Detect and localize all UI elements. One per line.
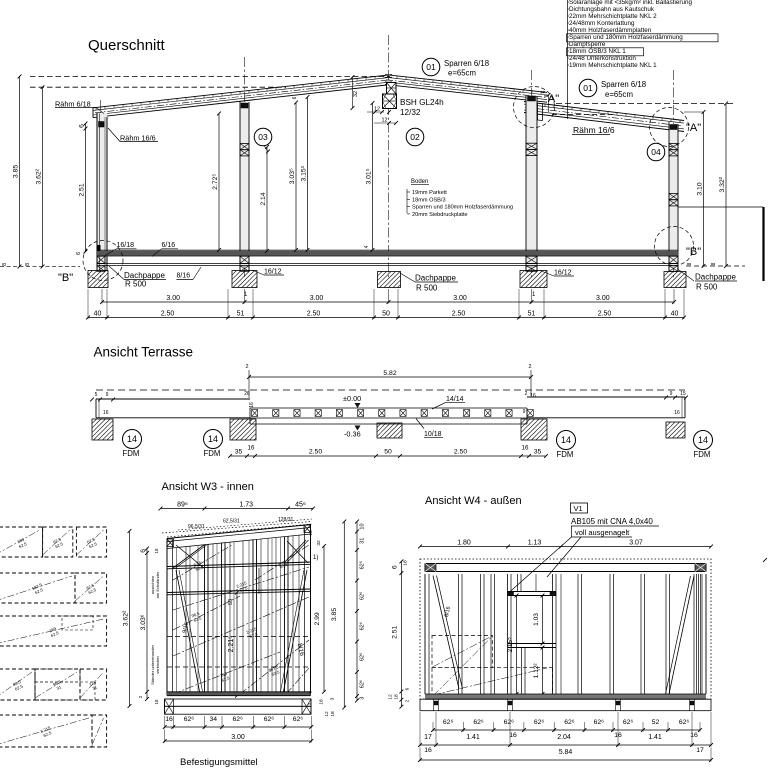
svg-text:"B": "B" (686, 246, 701, 258)
svg-text:2.04: 2.04 (557, 734, 571, 741)
svg-text:18: 18 (394, 694, 400, 700)
svg-text:2.50: 2.50 (454, 449, 467, 456)
svg-text:15: 15 (680, 391, 686, 397)
svg-text:e=65cm: e=65cm (448, 69, 476, 78)
svg-text:50: 50 (384, 449, 392, 456)
svg-text:Rähm 16/6: Rähm 16/6 (573, 125, 615, 135)
svg-text:14: 14 (698, 435, 708, 445)
svg-text:40: 40 (671, 310, 679, 317)
svg-text:62⁶: 62⁶ (534, 719, 545, 726)
svg-text:16: 16 (249, 402, 255, 408)
svg-text:34: 34 (210, 716, 218, 723)
svg-text:16: 16 (674, 410, 680, 416)
svg-text:19mm Parkett: 19mm Parkett (412, 190, 447, 196)
svg-text:verbinden: verbinden (155, 656, 160, 674)
svg-text:8/16: 8/16 (177, 273, 191, 280)
svg-text:32: 32 (316, 540, 322, 546)
svg-text:18: 18 (154, 699, 159, 705)
svg-text:6: 6 (405, 687, 411, 690)
svg-text:2.21⁵: 2.21⁵ (228, 636, 235, 653)
svg-text:26: 26 (244, 391, 250, 397)
svg-text:14: 14 (208, 434, 218, 444)
svg-text:"B": "B" (58, 272, 73, 284)
svg-text:16: 16 (103, 410, 109, 416)
svg-text:62⁶: 62⁶ (623, 719, 634, 726)
svg-text:AB105 mit CNA 4,0x40: AB105 mit CNA 4,0x40 (571, 517, 653, 526)
svg-text:62⁶: 62⁶ (359, 653, 366, 661)
svg-text:FDM: FDM (557, 450, 574, 459)
svg-text:Dichtungsbahn aus Kautschuk: Dichtungsbahn aus Kautschuk (569, 6, 655, 13)
svg-text:6: 6 (292, 96, 298, 99)
svg-text:FDM: FDM (694, 450, 711, 459)
svg-text:40mm Holzfaserdämmplatten: 40mm Holzfaserdämmplatten (569, 27, 652, 34)
svg-text:16: 16 (614, 732, 622, 739)
svg-text:62⁶: 62⁶ (233, 716, 244, 723)
svg-text:2.14: 2.14 (260, 192, 267, 205)
svg-text:16: 16 (165, 716, 173, 723)
svg-text:8/16: 8/16 (296, 643, 306, 657)
svg-text:1): 1) (313, 555, 318, 561)
svg-text:Querschnitt: Querschnitt (88, 37, 166, 54)
svg-text:R 500: R 500 (125, 280, 147, 289)
svg-text:03: 03 (258, 132, 268, 142)
svg-text:24/48mm Konterlattung: 24/48mm Konterlattung (569, 20, 635, 27)
svg-text:FDM: FDM (204, 449, 221, 458)
svg-text:9: 9 (670, 391, 673, 397)
svg-text:53: 53 (228, 599, 234, 605)
svg-text:6: 6 (78, 124, 85, 128)
svg-text:31: 31 (360, 538, 366, 544)
svg-text:5.84: 5.84 (559, 749, 573, 756)
svg-text:62⁶: 62⁶ (564, 719, 575, 726)
svg-text:1.13: 1.13 (528, 539, 542, 546)
svg-text:3.01⁵: 3.01⁵ (365, 168, 372, 184)
svg-text:16: 16 (424, 747, 432, 754)
svg-text:8: 8 (711, 262, 717, 265)
svg-text:3.32²: 3.32² (719, 176, 726, 192)
svg-text:3.00: 3.00 (310, 295, 324, 302)
svg-text:8: 8 (2, 263, 8, 266)
svg-text:6/16: 6/16 (162, 242, 176, 249)
svg-text:16: 16 (522, 445, 529, 452)
svg-text:1.80: 1.80 (457, 539, 471, 546)
svg-text:12: 12 (388, 694, 394, 700)
svg-text:2: 2 (138, 695, 143, 698)
svg-text:6: 6 (541, 90, 547, 93)
svg-text:Sparren und 180mm Holzfaserdäm: Sparren und 180mm Holzfaserdämmung (569, 34, 683, 41)
svg-text:18: 18 (319, 699, 325, 705)
svg-text:62⁶: 62⁶ (293, 716, 304, 723)
svg-text:62⁶: 62⁶ (359, 592, 366, 600)
svg-text:3.15⁵: 3.15⁵ (300, 165, 307, 181)
svg-text:Dachpappe: Dachpappe (415, 274, 456, 283)
svg-text:8: 8 (25, 263, 31, 266)
svg-text:2.72⁵: 2.72⁵ (212, 174, 219, 190)
svg-text:35: 35 (235, 449, 243, 456)
svg-text:6: 6 (308, 690, 314, 693)
svg-text:2.15⁵: 2.15⁵ (507, 637, 514, 653)
svg-text:01: 01 (583, 83, 593, 93)
svg-text:1.03: 1.03 (533, 613, 540, 626)
svg-text:5.82: 5.82 (383, 370, 396, 377)
svg-text:3.00: 3.00 (596, 295, 610, 302)
svg-text:12: 12 (381, 118, 387, 124)
svg-text:1: 1 (532, 292, 536, 298)
svg-text:62⁶: 62⁶ (264, 716, 275, 723)
svg-text:Sparren und 180mm Holzfaserdäm: Sparren und 180mm Holzfaserdämmung (412, 205, 513, 211)
svg-text:1.41: 1.41 (466, 734, 480, 741)
svg-text:51: 51 (237, 310, 245, 317)
svg-text:3.62²: 3.62² (35, 168, 42, 184)
svg-text:18: 18 (154, 548, 159, 554)
svg-text:3.03⁶: 3.03⁶ (140, 614, 147, 630)
svg-text:16/12: 16/12 (264, 269, 282, 276)
svg-text:18mm OSB/3: 18mm OSB/3 (412, 197, 446, 203)
svg-text:1.12²: 1.12² (533, 663, 540, 679)
svg-text:"A": "A" (544, 93, 559, 105)
svg-text:2.51: 2.51 (78, 183, 85, 196)
svg-text:3: 3 (330, 697, 336, 700)
svg-text:2.50: 2.50 (161, 310, 175, 317)
svg-text:62⁶: 62⁶ (359, 680, 366, 688)
svg-text:31: 31 (56, 684, 63, 691)
svg-text:4: 4 (364, 245, 370, 248)
svg-text:2: 2 (308, 702, 314, 705)
svg-text:35: 35 (534, 449, 542, 456)
svg-text:3.00: 3.00 (231, 734, 245, 741)
svg-text:5: 5 (95, 392, 98, 398)
svg-text:e=65cm: e=65cm (605, 90, 633, 99)
svg-text:12/32: 12/32 (400, 108, 421, 117)
svg-text:2.99: 2.99 (314, 612, 321, 625)
svg-text:40: 40 (94, 310, 102, 317)
svg-text:62,5/31: 62,5/31 (223, 519, 240, 525)
svg-text:Dachpappe: Dachpappe (695, 273, 736, 282)
svg-text:Befestigungsmittel: Befestigungsmittel (180, 757, 258, 768)
svg-text:±0.00: ±0.00 (343, 394, 361, 403)
svg-text:3.03⁵: 3.03⁵ (289, 168, 296, 184)
svg-text:62⁶: 62⁶ (594, 719, 605, 726)
svg-text:2: 2 (525, 391, 528, 397)
svg-text:04: 04 (651, 147, 661, 157)
svg-text:1.41: 1.41 (648, 734, 662, 741)
svg-text:3.85: 3.85 (12, 165, 19, 178)
svg-text:89⁶: 89⁶ (177, 501, 188, 508)
svg-text:1.73: 1.73 (239, 501, 253, 508)
svg-text:BSH GL24h: BSH GL24h (400, 98, 444, 107)
svg-text:3.62²: 3.62² (122, 610, 129, 626)
svg-text:R 500: R 500 (696, 283, 718, 292)
svg-text:6: 6 (140, 549, 147, 553)
svg-text:1: 1 (244, 292, 248, 298)
svg-text:3.07: 3.07 (629, 539, 643, 546)
svg-text:14: 14 (127, 434, 137, 444)
svg-text:3.00: 3.00 (453, 295, 467, 302)
svg-text:"A": "A" (686, 122, 701, 134)
svg-text:6: 6 (76, 252, 82, 255)
svg-text:2: 2 (528, 364, 531, 370)
svg-text:2.51: 2.51 (392, 625, 399, 638)
svg-text:50: 50 (382, 310, 390, 317)
svg-text:18mm OSB/3 NKL 1: 18mm OSB/3 NKL 1 (569, 48, 626, 55)
svg-text:16/12: 16/12 (554, 270, 572, 277)
svg-text:96,5/31: 96,5/31 (188, 524, 205, 530)
svg-text:2.50: 2.50 (598, 310, 612, 317)
svg-text:62⁶: 62⁶ (679, 719, 690, 726)
svg-text:62⁶: 62⁶ (443, 719, 454, 726)
svg-text:19mm Mehrschichtplatte NKL 1: 19mm Mehrschichtplatte NKL 1 (569, 62, 657, 69)
svg-text:128/31: 128/31 (278, 517, 294, 523)
svg-text:V1: V1 (574, 504, 583, 513)
svg-text:am Eckständer: am Eckständer (155, 571, 160, 598)
svg-text:2.50: 2.50 (307, 310, 321, 317)
svg-text:9: 9 (523, 409, 526, 415)
svg-text:51: 51 (528, 310, 536, 317)
svg-text:6: 6 (392, 565, 399, 569)
svg-text:8: 8 (687, 262, 693, 265)
svg-text:3.85: 3.85 (331, 608, 338, 621)
svg-text:62⁵: 62⁵ (359, 561, 366, 569)
svg-text:voll ausgenagelt: voll ausgenagelt (575, 528, 630, 537)
svg-text:62⁶: 62⁶ (473, 719, 484, 726)
svg-text:32: 32 (353, 91, 359, 97)
svg-text:16: 16 (690, 732, 698, 739)
svg-text:17: 17 (696, 747, 704, 754)
svg-text:2: 2 (245, 364, 248, 370)
svg-text:14: 14 (561, 435, 571, 445)
svg-text:01: 01 (426, 62, 436, 72)
svg-text:9: 9 (106, 392, 109, 398)
svg-text:Ansicht Terrasse: Ansicht Terrasse (94, 345, 194, 360)
svg-text:62⁶: 62⁶ (359, 622, 366, 630)
svg-text:10: 10 (360, 523, 366, 529)
svg-text:18: 18 (308, 530, 314, 536)
svg-text:12: 12 (324, 711, 330, 717)
svg-text:17: 17 (424, 734, 432, 741)
svg-text:16: 16 (248, 445, 255, 452)
svg-text:2.50: 2.50 (452, 310, 466, 317)
svg-text:Sparren 6/18: Sparren 6/18 (444, 59, 489, 68)
svg-text:18: 18 (403, 560, 409, 566)
svg-text:16: 16 (509, 732, 517, 739)
svg-text:-0.36: -0.36 (344, 430, 361, 439)
svg-text:Ansicht W3 - innen: Ansicht W3 - innen (162, 481, 254, 493)
svg-text:R 500: R 500 (416, 284, 438, 293)
svg-text:52: 52 (652, 719, 660, 726)
svg-text:2: 2 (405, 699, 411, 702)
svg-text:20mm Siebdruckplatte: 20mm Siebdruckplatte (412, 212, 468, 218)
svg-text:62⁶: 62⁶ (504, 719, 515, 726)
svg-text:22mm Mehrschichtplatte NKL 2: 22mm Mehrschichtplatte NKL 2 (569, 13, 657, 20)
svg-text:3.10: 3.10 (696, 182, 703, 195)
svg-text:62⁶: 62⁶ (184, 716, 195, 723)
svg-text:02: 02 (410, 132, 420, 142)
svg-text:FDM: FDM (123, 449, 140, 458)
svg-text:8/16: 8/16 (444, 606, 452, 618)
svg-text:16: 16 (530, 393, 536, 399)
svg-text:45⁶: 45⁶ (295, 501, 306, 508)
svg-text:3: 3 (360, 697, 366, 700)
svg-text:2.50: 2.50 (309, 449, 322, 456)
svg-text:3.00: 3.00 (166, 295, 180, 302)
svg-text:Sparren 6/18: Sparren 6/18 (601, 80, 646, 89)
svg-text:Ansicht W4 - außen: Ansicht W4 - außen (425, 495, 522, 507)
svg-text:18: 18 (330, 711, 336, 717)
